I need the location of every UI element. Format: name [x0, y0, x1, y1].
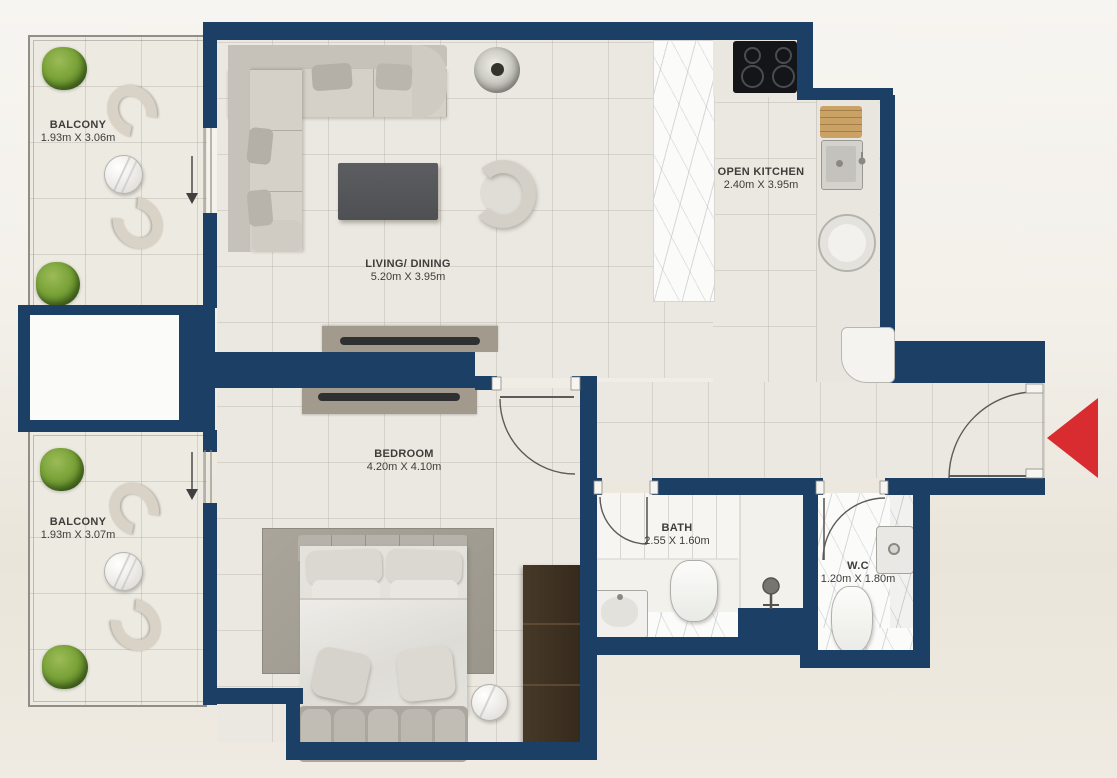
wall-left-top-a	[203, 22, 217, 128]
room-name: W.C	[821, 560, 896, 573]
wall-wc-bottom	[800, 650, 930, 668]
sofa-pillow	[246, 127, 274, 165]
room-name: BATH	[644, 522, 709, 535]
room-dimensions: 2.55 X 1.60m	[644, 535, 709, 548]
wall-kitchen-right	[880, 95, 895, 345]
burner-icon	[741, 65, 764, 88]
burner-icon	[772, 65, 795, 88]
room-name: BEDROOM	[367, 448, 442, 461]
washer-appliance	[841, 327, 895, 383]
balcony-table	[104, 552, 143, 591]
wall-divider-thick	[215, 352, 475, 388]
room-name: BALCONY	[41, 119, 116, 132]
burner-icon	[744, 47, 761, 64]
sofa-pillow	[311, 63, 353, 92]
tv-screen-living	[340, 337, 480, 345]
wall-entry-top	[880, 341, 1045, 383]
room-label-bath: BATH 2.55 X 1.60m	[644, 522, 709, 548]
cutting-board	[820, 106, 862, 138]
service-shaft-void	[30, 315, 179, 420]
wall-divider-thin-right	[572, 376, 597, 390]
room-label-balcony-bottom: BALCONY 1.93m X 3.07m	[41, 516, 116, 542]
kitchen-island	[653, 40, 715, 302]
wall-left-bottom-a	[203, 430, 217, 452]
coffee-table	[338, 163, 438, 220]
wall-divider-thin-left	[475, 376, 497, 390]
plant-icon	[42, 645, 88, 689]
room-dimensions: 1.20m X 1.80m	[821, 573, 896, 586]
room-label-bedroom: BEDROOM 4.20m X 4.10m	[367, 448, 442, 474]
wall-left-bottom-b	[203, 503, 217, 705]
room-name: BALCONY	[41, 516, 116, 529]
service-shaft	[18, 305, 215, 432]
plant-icon	[40, 448, 84, 491]
room-label-open-kitchen: OPEN KITCHEN 2.40m X 3.95m	[718, 166, 805, 192]
wall-left-top-b	[203, 213, 217, 308]
wc-sink-drain-icon	[888, 543, 900, 555]
tv-console-bedroom	[302, 388, 477, 414]
accent-pillow	[395, 645, 456, 703]
room-label-living-dining: LIVING/ DINING 5.20m X 3.95m	[365, 258, 450, 284]
room-dimensions: 5.20m X 3.95m	[365, 271, 450, 284]
wall-corridor-bottom-right	[885, 478, 1045, 495]
plant-icon	[36, 262, 80, 306]
room-name: OPEN KITCHEN	[718, 166, 805, 179]
decor-plant-center	[491, 63, 504, 76]
bath-basin	[601, 597, 638, 627]
plant-icon	[42, 47, 87, 90]
wall-top	[205, 22, 813, 40]
entry-arrow-icon	[1047, 398, 1098, 478]
sofa-pillow	[375, 63, 412, 91]
wc-toilet	[831, 586, 873, 654]
wall-corridor-bottom-left	[652, 478, 823, 495]
wall-bedroom-right	[580, 388, 597, 760]
sofa-pillow	[246, 189, 273, 227]
sink-drain-icon	[836, 160, 843, 167]
wall-wc-right	[913, 495, 930, 668]
room-dimensions: 4.20m X 4.10m	[367, 461, 442, 474]
round-appliance	[818, 214, 876, 272]
room-dimensions: 1.93m X 3.06m	[41, 132, 116, 145]
room-dimensions: 1.93m X 3.07m	[41, 529, 116, 542]
balcony-table	[104, 155, 143, 194]
burner-icon	[775, 47, 792, 64]
corridor-floor	[597, 382, 1045, 478]
wall-bath-bottom	[580, 637, 746, 655]
wall-bath-step	[738, 608, 806, 655]
room-name: LIVING/ DINING	[365, 258, 450, 271]
wall-kitchen-step-h	[797, 88, 893, 100]
bath-faucet-icon	[617, 594, 623, 600]
room-label-wc: W.C 1.20m X 1.80m	[821, 560, 896, 586]
room-label-balcony-top: BALCONY 1.93m X 3.06m	[41, 119, 116, 145]
room-dimensions: 2.40m X 3.95m	[718, 179, 805, 192]
tv-screen-bedroom	[318, 393, 460, 401]
bath-toilet	[670, 560, 718, 622]
floor-plan: BALCONY 1.93m X 3.06m LIVING/ DINING 5.2…	[0, 0, 1117, 778]
wall-bedroom-bottom	[286, 742, 597, 760]
bedside-table	[471, 684, 508, 721]
